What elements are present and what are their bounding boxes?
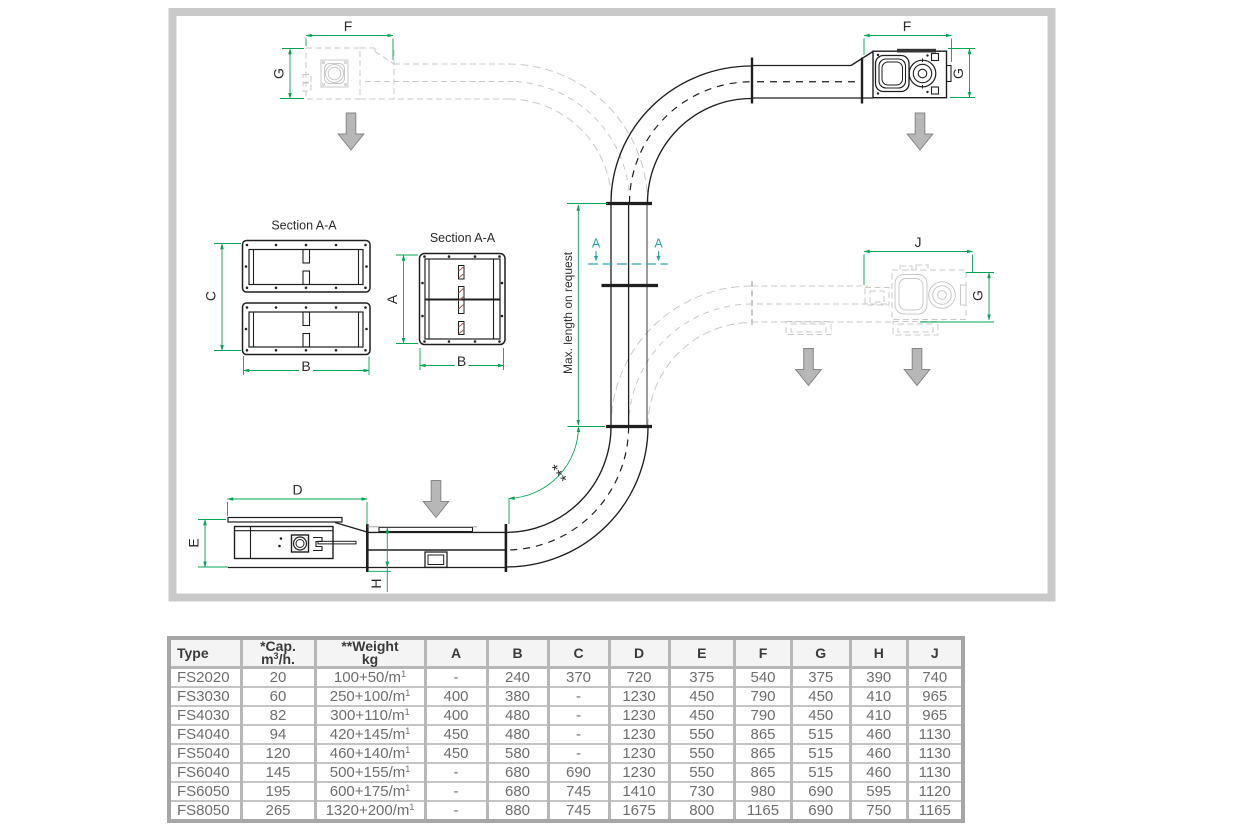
svg-text:B: B bbox=[301, 358, 310, 374]
svg-text:G: G bbox=[970, 290, 986, 301]
svg-text:A: A bbox=[384, 294, 400, 304]
svg-text:A: A bbox=[592, 237, 601, 251]
svg-text:F: F bbox=[903, 18, 912, 34]
svg-text:A: A bbox=[654, 237, 663, 251]
svg-text:G: G bbox=[271, 68, 287, 79]
svg-text:J: J bbox=[915, 234, 922, 250]
svg-text:G: G bbox=[950, 68, 966, 79]
svg-text:F: F bbox=[344, 18, 353, 34]
svg-text:C: C bbox=[203, 291, 219, 301]
svg-text:D: D bbox=[292, 482, 302, 498]
svg-text:E: E bbox=[186, 538, 202, 547]
svg-text:Section A-A: Section A-A bbox=[271, 219, 337, 233]
svg-text:Section A-A: Section A-A bbox=[430, 231, 496, 245]
svg-text:Max. length on request: Max. length on request bbox=[561, 251, 575, 374]
svg-text:B: B bbox=[457, 353, 466, 369]
svg-text:H: H bbox=[368, 578, 384, 588]
